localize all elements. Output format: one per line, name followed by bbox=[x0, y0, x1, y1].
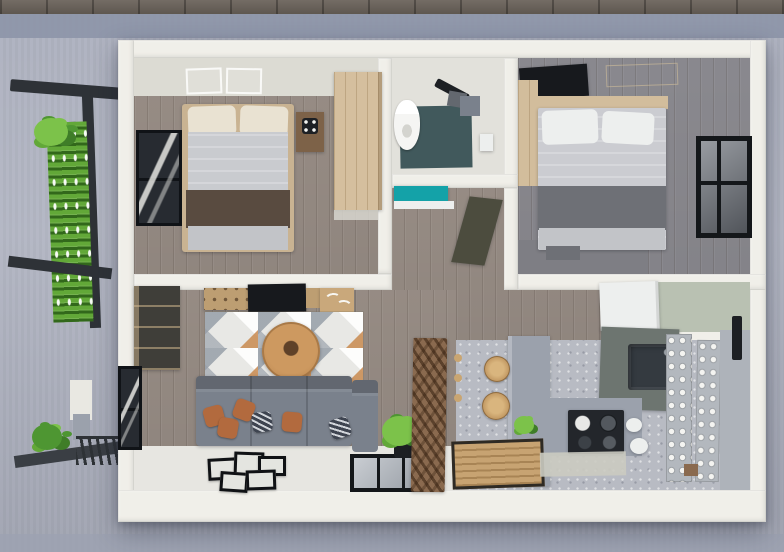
plant-pot bbox=[394, 444, 412, 458]
vanity-edge bbox=[394, 201, 454, 209]
floor-picture-frame bbox=[246, 469, 277, 490]
wall-tv bbox=[248, 283, 306, 312]
wall-top bbox=[118, 40, 766, 58]
drain-grate bbox=[76, 436, 120, 465]
flower-decor bbox=[302, 118, 318, 134]
refrigerator bbox=[599, 281, 660, 331]
vertical-garden-green-wall bbox=[47, 121, 94, 322]
small-crate bbox=[684, 464, 698, 476]
paver-sidewalk bbox=[0, 0, 784, 14]
bird-wall-art bbox=[320, 288, 354, 314]
bed1-runner bbox=[186, 190, 290, 228]
bed2-foot-blanket bbox=[538, 186, 666, 230]
white-bowl bbox=[626, 418, 642, 432]
living-room-window bbox=[118, 366, 142, 450]
shower-caddy bbox=[460, 96, 480, 116]
floor-picture-frame bbox=[219, 471, 248, 493]
white-kettle bbox=[630, 438, 648, 454]
bed1-duvet bbox=[188, 132, 288, 196]
kitchen-floor-mat bbox=[540, 451, 626, 476]
climbing-plant bbox=[34, 118, 68, 146]
bed2-pillow bbox=[601, 111, 655, 146]
curb-band bbox=[0, 14, 784, 38]
wall-peg bbox=[454, 354, 462, 362]
bedroom1-window bbox=[136, 130, 182, 226]
round-coffee-table bbox=[262, 322, 320, 380]
wardrobe bbox=[334, 72, 382, 210]
bar-stool bbox=[484, 356, 510, 382]
wall-handle bbox=[732, 316, 742, 360]
bed1-foot-sheet bbox=[188, 226, 288, 250]
sofa-chaise bbox=[352, 380, 378, 452]
wall-peg bbox=[454, 394, 462, 402]
bed2-pillow bbox=[541, 109, 598, 145]
wall-bathroom-right bbox=[504, 58, 518, 188]
wall-bedroom2-left bbox=[504, 188, 518, 290]
media-console bbox=[204, 288, 248, 310]
shrub bbox=[32, 424, 62, 450]
throw-pillow-orange bbox=[281, 411, 303, 433]
dish-rack bbox=[695, 340, 721, 482]
bar-stool bbox=[482, 392, 510, 420]
toilet-paper-holder bbox=[480, 134, 493, 151]
throw-pillow-orange bbox=[216, 416, 239, 439]
ground-bottom-shade bbox=[0, 534, 784, 552]
bedroom2-side-wardrobe bbox=[518, 80, 538, 186]
bedroom2-window bbox=[696, 136, 752, 238]
bird-glyph bbox=[335, 299, 352, 313]
display-cabinet bbox=[134, 286, 180, 370]
skylight-mark bbox=[226, 68, 262, 95]
wall-bottom bbox=[118, 490, 766, 522]
skylight-mark bbox=[186, 67, 223, 94]
counter-plant bbox=[514, 416, 534, 434]
toilet bbox=[394, 100, 420, 150]
gas-stove bbox=[568, 410, 624, 454]
teal-vanity bbox=[394, 186, 448, 201]
house-outer-wall bbox=[118, 40, 766, 522]
throw-pillow-navy bbox=[251, 411, 274, 434]
wardrobe-shadow bbox=[334, 210, 378, 220]
ceiling-mark bbox=[606, 63, 679, 87]
dish-rack bbox=[666, 334, 692, 482]
bed2-throw bbox=[546, 246, 580, 260]
wood-doormat bbox=[451, 438, 545, 489]
floorplan-render bbox=[0, 0, 784, 552]
wood-slat-divider bbox=[411, 338, 448, 493]
wall-peg bbox=[454, 374, 462, 382]
